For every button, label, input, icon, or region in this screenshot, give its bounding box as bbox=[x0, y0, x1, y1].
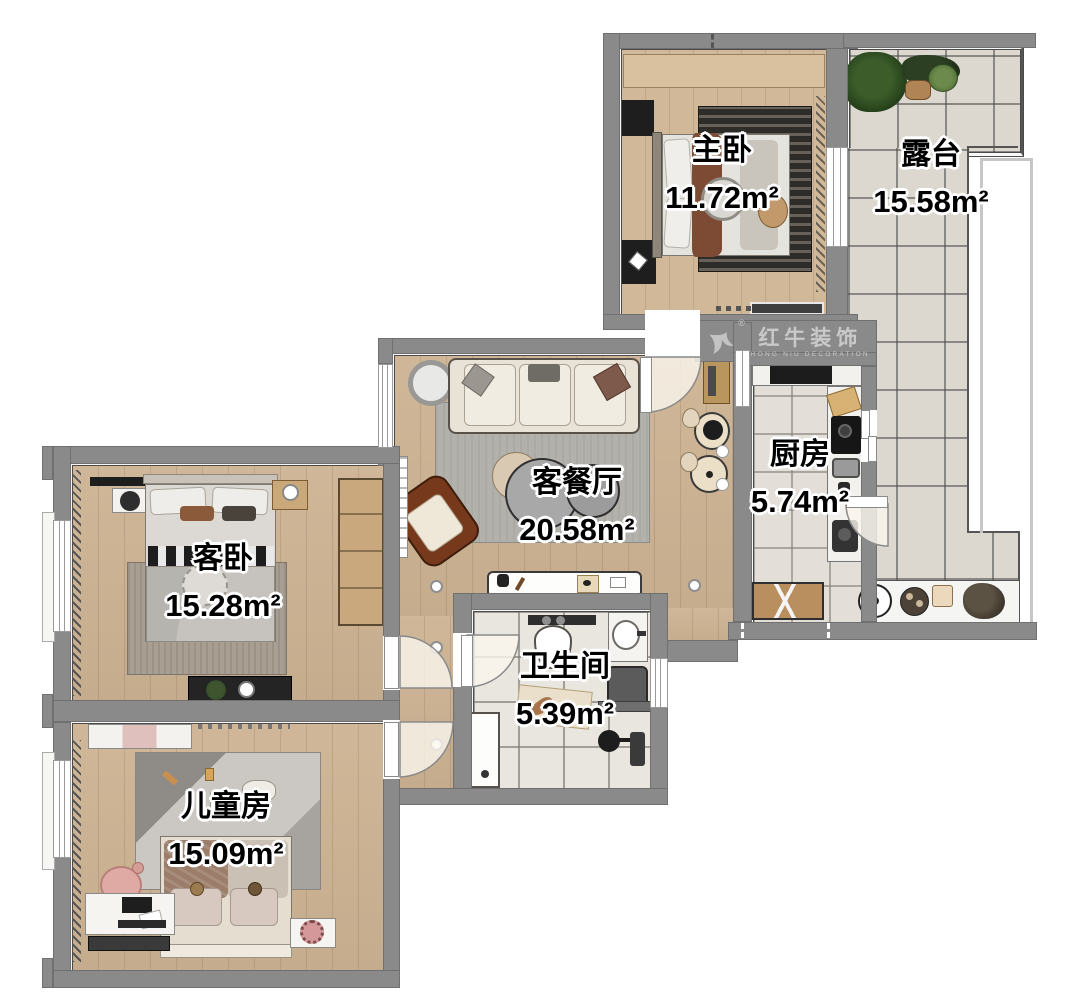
window-living bbox=[378, 364, 393, 448]
room-label-living: 客餐厅 20.58m² bbox=[519, 468, 634, 545]
room-label-bathroom: 卫生间 5.39m² bbox=[516, 652, 614, 729]
door-leaf-kids[interactable] bbox=[384, 722, 399, 777]
window-mullion bbox=[382, 364, 383, 448]
kids-teddy-1 bbox=[190, 882, 204, 896]
room-name: 厨房 bbox=[770, 440, 830, 470]
door-leaf-bathroom[interactable] bbox=[461, 635, 473, 687]
plant-pot bbox=[905, 80, 931, 100]
master-floor-dots bbox=[716, 306, 754, 311]
laundry-cup bbox=[906, 593, 913, 600]
window-bathroom bbox=[650, 658, 668, 708]
master-nightstand-top bbox=[622, 100, 654, 136]
brand-name: 红牛装饰 bbox=[758, 328, 862, 349]
laundry-basket bbox=[932, 585, 953, 607]
room-name: 卫生间 bbox=[520, 652, 610, 682]
guest-bed-headboard bbox=[143, 474, 278, 484]
window-mullion bbox=[833, 147, 834, 247]
guest-wardrobe bbox=[338, 478, 384, 626]
terrace-railing-right bbox=[1030, 158, 1033, 638]
shower-caddy bbox=[630, 732, 645, 766]
kitchen-storage-cabinet bbox=[752, 582, 824, 620]
terrace-step-line2 bbox=[967, 531, 1020, 533]
kitchen-bin-lid bbox=[838, 528, 851, 541]
window-guest bbox=[53, 520, 71, 632]
wall bbox=[378, 338, 393, 364]
wall bbox=[861, 366, 877, 622]
room-name: 客卧 bbox=[193, 544, 253, 574]
wall-dashed-mark bbox=[827, 623, 830, 638]
wall-pilaster bbox=[42, 446, 53, 480]
room-area: 11.72m² bbox=[665, 182, 779, 213]
wall bbox=[728, 622, 1037, 640]
laundry-plant-decor bbox=[963, 583, 1005, 619]
brand-subtitle: HONG NIU DECORATION bbox=[751, 352, 870, 359]
room-area: 5.74m² bbox=[751, 486, 849, 517]
window-mullion bbox=[64, 760, 65, 858]
kids-media-bar bbox=[88, 936, 170, 951]
registered-mark: ® bbox=[738, 318, 745, 328]
console-decor-dot bbox=[583, 580, 591, 586]
terrace-railing-top bbox=[983, 158, 1033, 161]
wall bbox=[53, 970, 400, 988]
plant-succulent bbox=[928, 64, 958, 92]
kids-pink-pot-handle bbox=[132, 862, 144, 874]
sliding-door-panel[interactable] bbox=[861, 410, 870, 439]
room-area: 15.09m² bbox=[168, 838, 283, 869]
kids-curtain bbox=[72, 740, 81, 962]
console-decor-dark bbox=[497, 574, 509, 587]
window-master-terrace bbox=[826, 147, 848, 247]
window-mullion bbox=[655, 658, 656, 708]
wall bbox=[53, 700, 400, 722]
kids-pink-fan bbox=[300, 920, 324, 944]
guest-pillow-dark bbox=[222, 506, 256, 521]
wall bbox=[398, 788, 668, 805]
towel-bar-knob bbox=[542, 616, 551, 625]
window-mullion bbox=[64, 520, 65, 632]
window-mullion bbox=[387, 364, 388, 448]
dining-plate-2 bbox=[716, 478, 729, 491]
room-label-kids: 儿童房 15.09m² bbox=[168, 792, 283, 869]
dining-plate-1 bbox=[716, 445, 729, 458]
wall-pilaster bbox=[42, 694, 53, 728]
room-name: 主卧 bbox=[692, 136, 752, 166]
room-area: 20.58m² bbox=[519, 514, 634, 545]
sofa-tray bbox=[528, 364, 560, 382]
cooktop-burner bbox=[838, 424, 852, 438]
door-leaf-kitchen[interactable] bbox=[846, 496, 888, 508]
kids-teddy-2 bbox=[248, 882, 262, 896]
wall-pilaster bbox=[42, 958, 53, 988]
spotlight bbox=[688, 579, 701, 592]
bathroom-sink bbox=[612, 620, 640, 650]
spotlight bbox=[430, 641, 443, 654]
room-area: 5.39m² bbox=[516, 698, 614, 729]
room-name: 露台 bbox=[901, 140, 961, 170]
door-leaf-guest[interactable] bbox=[384, 636, 399, 689]
range-hood bbox=[770, 365, 832, 384]
bathroom-faucet bbox=[637, 631, 646, 636]
window-mullion bbox=[59, 760, 60, 858]
window-mullion bbox=[840, 147, 841, 247]
wall-dashed-mark bbox=[711, 34, 714, 48]
window-mullion bbox=[660, 658, 661, 708]
kids-bed-footboard bbox=[160, 944, 292, 958]
master-bed-headboard bbox=[652, 132, 662, 258]
doorway-master bbox=[645, 310, 700, 357]
guest-dresser-plant bbox=[206, 680, 226, 700]
room-label-kitchen: 厨房 5.74m² bbox=[751, 440, 849, 517]
hongniu-bull-icon bbox=[706, 328, 736, 358]
master-top-cabinet bbox=[623, 54, 825, 88]
room-label-guest: 客卧 15.28m² bbox=[165, 544, 280, 621]
wall bbox=[453, 593, 668, 610]
room-name: 客餐厅 bbox=[532, 468, 622, 498]
sliding-door-panel[interactable] bbox=[868, 436, 877, 462]
room-label-terrace: 露台 15.58m² bbox=[873, 140, 988, 217]
spotlight bbox=[430, 580, 443, 593]
window-mullion bbox=[59, 520, 60, 632]
guest-lamp bbox=[282, 484, 299, 501]
room-area: 15.28m² bbox=[165, 590, 280, 621]
slim-cabinet-faucet bbox=[481, 770, 489, 778]
spotlight bbox=[430, 738, 443, 751]
wall bbox=[53, 446, 400, 464]
dining-shelf-item bbox=[708, 366, 716, 396]
wall bbox=[453, 593, 472, 805]
wall bbox=[603, 33, 620, 330]
window-kids bbox=[53, 760, 71, 858]
guest-curtain bbox=[72, 470, 81, 696]
room-area: 15.58m² bbox=[873, 186, 988, 217]
laundry-side-table bbox=[900, 587, 929, 616]
wall bbox=[378, 338, 648, 354]
hallway-floor bbox=[398, 616, 458, 790]
console-decor-white bbox=[610, 577, 626, 588]
brand-logo: ® 红牛装饰 HONG NIU DECORATION bbox=[700, 324, 876, 362]
door-leaf-master[interactable] bbox=[640, 357, 652, 413]
laundry-cup2 bbox=[916, 600, 923, 607]
towel-bar-knob2 bbox=[556, 616, 565, 625]
dining-chair-2 bbox=[680, 452, 698, 472]
guest-desk-chair bbox=[120, 491, 140, 511]
kids-monitor bbox=[122, 897, 152, 913]
wall bbox=[843, 33, 1036, 48]
room-label-master: 主卧 11.72m² bbox=[665, 136, 779, 213]
kids-top-cabinet bbox=[88, 724, 192, 749]
wall bbox=[603, 33, 858, 49]
coffee-machine bbox=[703, 420, 723, 440]
master-curtain bbox=[816, 96, 825, 292]
guest-pillow-brown bbox=[180, 506, 214, 521]
dining-chair-1 bbox=[682, 408, 700, 428]
room-name: 儿童房 bbox=[181, 792, 271, 822]
kids-keyboard bbox=[118, 920, 166, 928]
wall-dashed-mark bbox=[741, 623, 744, 638]
kids-toy-4 bbox=[205, 768, 214, 781]
dining-table-2-dot bbox=[706, 471, 713, 478]
guest-dresser-mirror bbox=[238, 681, 255, 698]
kids-garland-dots bbox=[198, 724, 290, 729]
floor-plan: ® 红牛装饰 HONG NIU DECORATION 主卧 11.72m² 露台… bbox=[0, 0, 1092, 1000]
living-nook-floor bbox=[666, 608, 735, 644]
